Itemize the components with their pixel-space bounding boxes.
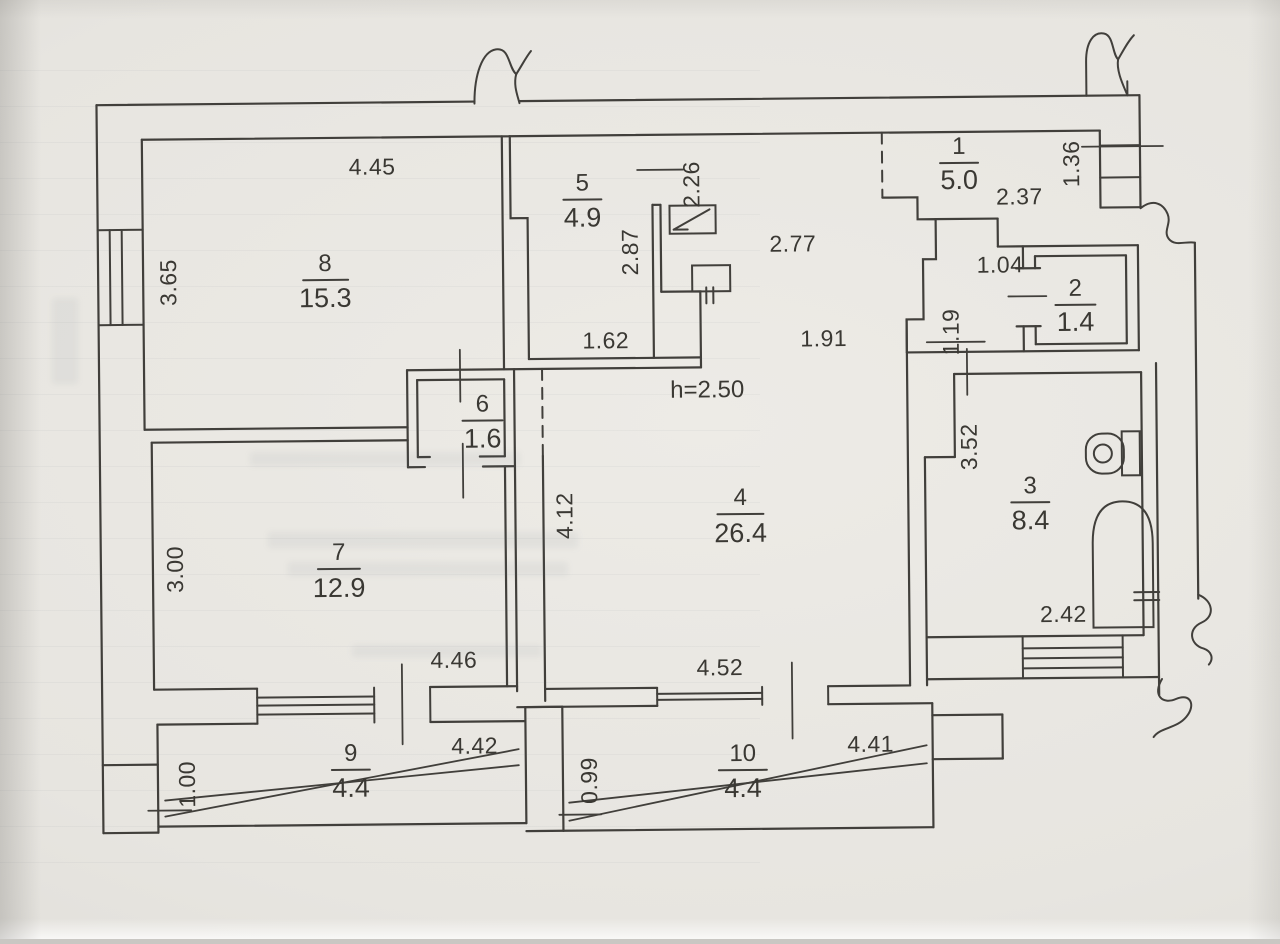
floor-plan-drawing: 8 15.3 4.45 3.65 5 4.9 2.87 1.62 2.26 2.… <box>0 0 1280 939</box>
room1-area: 5.0 <box>940 165 978 195</box>
window-icon <box>1100 145 1140 177</box>
dim-balcony10-width: 4.41 <box>847 731 894 757</box>
room7-number: 7 <box>332 539 346 566</box>
bathtub-icon <box>1092 501 1159 628</box>
room2-number: 2 <box>1068 275 1082 302</box>
room8-number: 8 <box>318 250 332 277</box>
dim-balcony9-depth: 1.00 <box>174 761 200 808</box>
room2-area: 1.4 <box>1057 307 1095 337</box>
dim-room4-depth: 4.12 <box>551 492 577 539</box>
dim-balcony9-width: 4.42 <box>451 732 498 758</box>
window-icon <box>257 687 430 724</box>
dim-niche-width: 1.04 <box>977 251 1024 277</box>
dim-entry-window: 1.36 <box>1058 140 1084 187</box>
room6-walls <box>407 367 702 467</box>
room6-number: 6 <box>476 390 490 417</box>
room1-number: 1 <box>952 133 966 160</box>
dim-hall-upper: 2.77 <box>769 230 816 256</box>
window-icon <box>98 230 144 325</box>
room10-area: 4.4 <box>724 773 762 803</box>
dim-room3-depth: 3.52 <box>956 423 982 470</box>
room3-number: 3 <box>1023 472 1037 499</box>
room4-area: 26.4 <box>714 518 767 549</box>
room4-number: 4 <box>733 484 747 511</box>
window-icon <box>657 686 828 706</box>
dim-room7-width: 4.46 <box>430 647 477 673</box>
dim-room3-width: 2.42 <box>1040 601 1087 627</box>
dim-niche-depth: 1.19 <box>937 309 963 356</box>
window-icon <box>1023 635 1123 678</box>
room9-number: 9 <box>344 740 358 767</box>
corridor-wall <box>1155 243 1199 695</box>
dim-room1-width: 2.37 <box>996 183 1043 209</box>
wall-break-icon <box>1140 203 1194 244</box>
scanned-floor-plan-page: 8 15.3 4.45 3.65 5 4.9 2.87 1.62 2.26 2.… <box>0 0 1280 939</box>
room8-area: 15.3 <box>299 283 352 314</box>
dim-balcony10-depth: 0.99 <box>576 757 602 804</box>
room5-area: 4.9 <box>564 202 602 232</box>
dim-room4-width: 4.52 <box>696 654 743 680</box>
exterior-walls <box>96 95 1146 833</box>
room9-area: 4.4 <box>332 773 370 803</box>
wall-break-icon <box>1152 595 1212 738</box>
room3-area: 8.4 <box>1012 505 1050 535</box>
meter-box-icon <box>692 265 730 303</box>
balcony9-walls <box>154 686 526 833</box>
dim-room8-depth: 3.65 <box>155 259 181 306</box>
room6-area: 1.6 <box>464 423 502 453</box>
dim-hall-lower: 1.91 <box>800 325 847 351</box>
room5-number: 5 <box>575 169 589 196</box>
dim-opening-depth: 2.26 <box>678 161 704 208</box>
dim-room7-depth: 3.00 <box>162 546 188 593</box>
dim-room5-width: 1.62 <box>582 327 629 353</box>
wall-break-icon <box>1086 33 1135 96</box>
electrical-panel-icon <box>669 205 715 233</box>
dim-room8-width: 4.45 <box>349 153 396 179</box>
room7-area: 12.9 <box>313 573 366 604</box>
room10-number: 10 <box>729 740 756 767</box>
ceiling-height-note: h=2.50 <box>670 376 744 404</box>
wall-break-icon <box>474 49 532 104</box>
dim-room5-depth: 2.87 <box>617 229 643 276</box>
toilet-icon <box>1086 431 1140 476</box>
